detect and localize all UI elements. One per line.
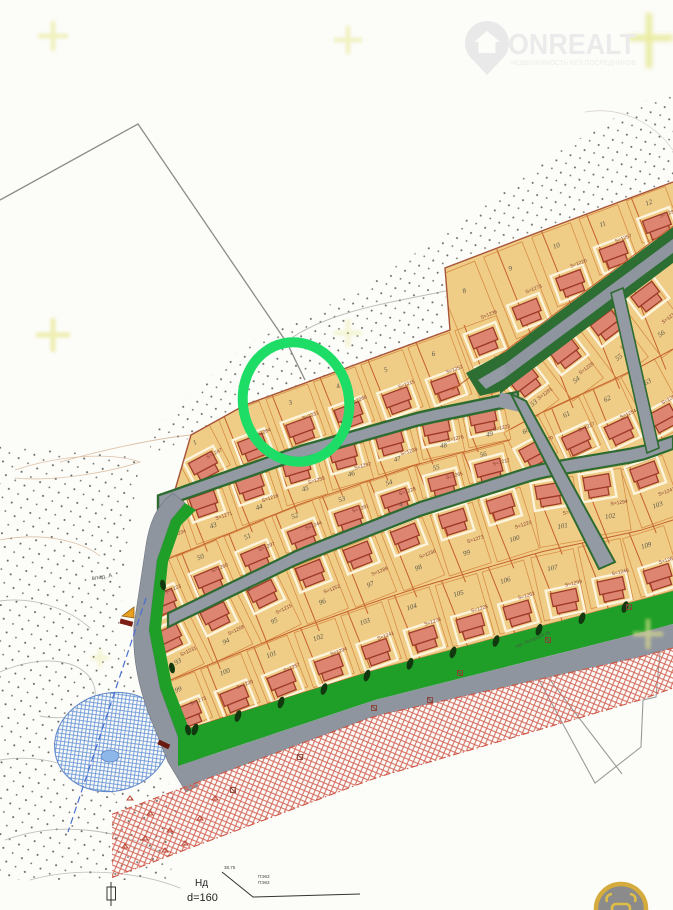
svg-text:Нд: Нд bbox=[195, 878, 208, 889]
svg-text:38.75: 38.75 bbox=[224, 865, 236, 870]
svg-text:ПЭ63: ПЭ63 bbox=[258, 874, 270, 879]
svg-text:НЕДВИЖИМОСТЬ БЕЗ ПОСРЕДНИКОВ: НЕДВИЖИМОСТЬ БЕЗ ПОСРЕДНИКОВ bbox=[510, 60, 636, 67]
svg-text:ONREALT: ONREALT bbox=[508, 29, 636, 61]
svg-text:101: 101 bbox=[557, 521, 569, 531]
svg-text:ПЭ63: ПЭ63 bbox=[258, 880, 270, 885]
svg-text:d=160: d=160 bbox=[187, 892, 218, 904]
